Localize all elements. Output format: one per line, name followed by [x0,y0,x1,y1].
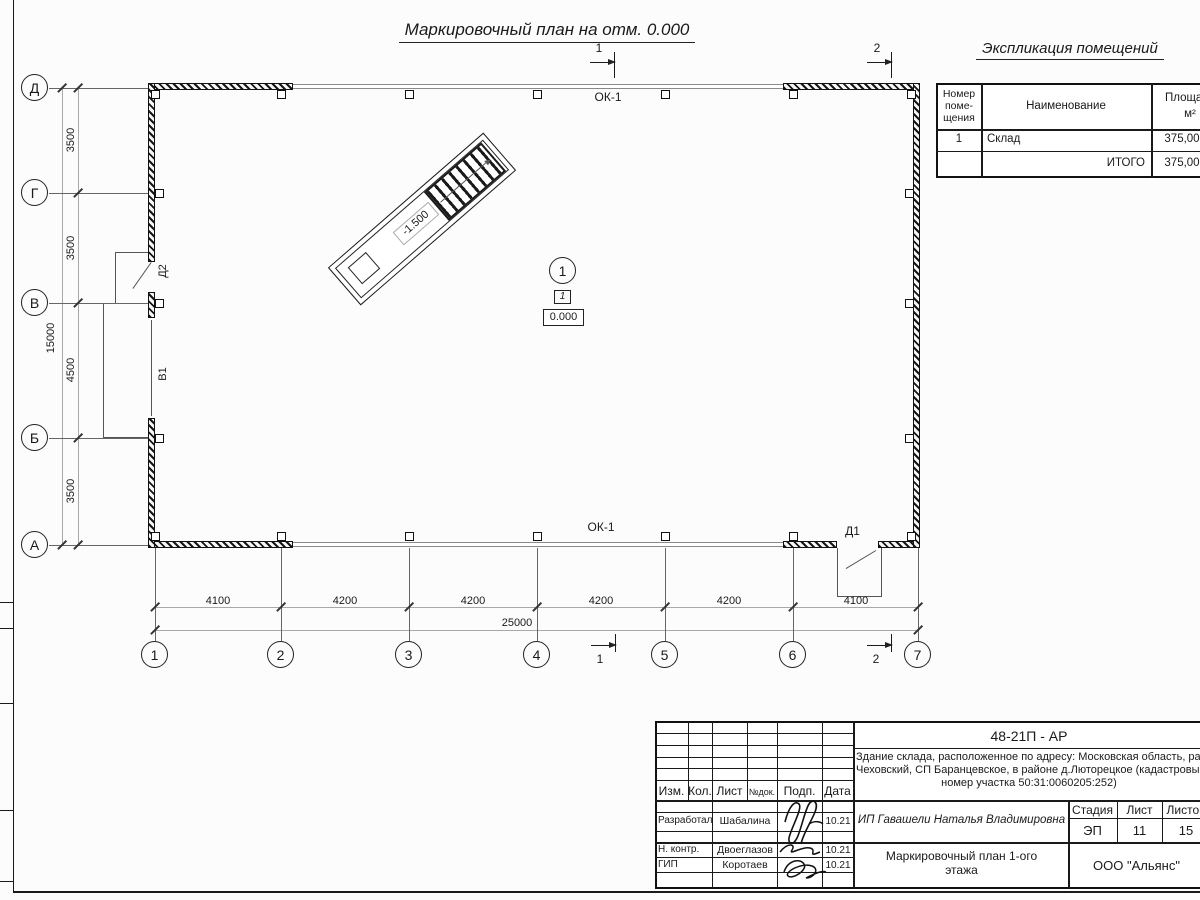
floor-elevation-box: 0.000 [543,309,584,326]
door-d2-porch-side [115,252,116,303]
frame-fold-mark [0,881,13,882]
frame-left [13,0,14,892]
section2-tick-top [891,52,892,78]
explication-row-num: 1 [937,133,981,145]
door-d1-leaf [846,550,877,569]
dim-label-total: 25000 [487,617,547,629]
wall-top-right [783,83,920,90]
tb-company: ООО "Альянс" [1068,858,1200,873]
column-square [405,532,414,541]
tb-header-kol: Кол. [686,784,714,798]
column-square [151,532,160,541]
wall-top-left [148,83,293,90]
column-square [661,532,670,541]
titleblock-line [655,800,1200,802]
dim-label: 4100 [188,595,248,607]
axis-label: 7 [914,647,922,663]
drawing-title-text: Маркировочный план на отм. 0.000 [399,20,696,43]
room-tag-box: 1 [554,290,571,304]
wall-right [913,83,920,548]
axis-line [49,438,148,439]
axis-label: А [30,537,39,553]
section1-arrow-top [590,62,609,63]
tb-name: Шабалина [714,815,776,827]
axis-line [49,193,148,194]
axis-circle-bottom: 6 [779,641,806,668]
axis-label: 1 [151,647,159,663]
axis-label: 4 [533,647,541,663]
axis-line [281,548,282,641]
section1-number-top: 1 [589,41,609,55]
explication-col-area-unit: м² [1151,108,1200,120]
gate-v1-line [151,320,152,416]
column-square [661,90,670,99]
explication-row-name: Склад [987,133,1147,145]
dim-label: 4200 [699,595,759,607]
axis-circle-left: В [21,289,48,316]
frame-fold-mark [0,628,13,629]
axis-line [665,548,666,641]
tb-role: Н. контр. [658,844,712,855]
explication-rowline [936,129,1200,131]
door-d1-porch-right [881,548,882,597]
dim-label: 4200 [571,595,631,607]
explication-col-number: Номерпоме-щения [937,88,981,124]
tb-role: ГИП [658,859,712,870]
ramp-group: -1.500 [328,133,516,306]
titleblock-line [712,721,713,889]
axis-line [49,88,148,89]
drawing-title: Маркировочный план на отм. 0.000 [347,20,747,43]
axis-circle-bottom: 1 [141,641,168,668]
column-square [907,532,916,541]
tb-sheet: 11 [1117,823,1162,838]
axis-circle-left: Б [21,424,48,451]
column-square [155,189,164,198]
explication-col-name: Наименование [981,100,1151,112]
door-d2-porch-top [115,252,148,253]
axis-label: 6 [789,647,797,663]
column-square [905,189,914,198]
titleblock-line [655,768,853,769]
axis-circle-bottom: 5 [651,641,678,668]
door-d2-leaf [132,262,151,289]
explication-title: Экспликация помещений [950,40,1190,60]
wall-bottom-left [148,541,293,548]
axis-line [793,548,794,641]
dim-label: 3500 [65,120,77,160]
wall-left-upper [148,83,155,262]
column-square [155,299,164,308]
titleblock-line [655,780,853,781]
column-square [277,532,286,541]
explication-total-label: ИТОГО [981,157,1145,169]
window-band-top [293,84,783,89]
dim-label: 4200 [443,595,503,607]
window-ok1-bottom-label: ОК-1 [576,520,626,534]
titleblock-line [655,757,853,758]
tb-address-line2: Чеховский, СП Баранцевское, в районе д.Л… [856,764,1200,776]
room-number: 1 [559,263,567,279]
section2-tick-bottom [891,634,892,652]
titleblock-line [855,748,1200,749]
room-number-circle: 1 [549,257,576,284]
column-square [905,434,914,443]
section2-number-top: 2 [867,41,887,55]
axis-label: 5 [661,647,669,663]
titleblock-line [655,745,853,746]
tb-header-izm: Изм. [655,784,688,798]
frame-fold-mark [0,810,13,811]
column-square [789,532,798,541]
section2-number-bottom: 2 [866,652,886,666]
explication-total-area: 375,00 [1151,157,1200,169]
titleblock-line [1068,818,1200,819]
axis-label: Г [31,185,39,201]
axis-circle-left: Г [21,179,48,206]
column-square [789,90,798,99]
section1-tick-top [614,52,615,78]
section1-number-bottom: 1 [590,652,610,666]
tb-date: 10.21 [823,816,853,827]
axis-line [49,303,148,304]
column-square [151,90,160,99]
tb-stage: ЭП [1068,823,1117,838]
tb-role: Разработал [658,815,712,826]
axis-circle-bottom: 4 [523,641,550,668]
tb-stage-label: Стадия [1068,803,1117,817]
column-square [277,90,286,99]
drawing-sheet: Маркировочный план на отм. 0.000 Эксплик… [0,0,1200,900]
frame-fold-mark [0,703,13,704]
platform-edge-left [103,303,104,438]
explication-title-text: Экспликация помещений [976,40,1164,60]
dim-label: 3500 [65,471,77,511]
column-square [405,90,414,99]
axis-circle-bottom: 7 [904,641,931,668]
wall-left-mid [148,292,155,318]
axis-circle-bottom: 2 [267,641,294,668]
window-band-bottom [293,542,783,547]
door-d2-label: Д2 [157,251,169,291]
section1-tick-bottom [615,634,616,652]
explication-row-area: 375,00 [1151,133,1200,145]
frame-fold-mark [0,602,13,603]
tb-address-line3: номер участка 50:31:0060205:252) [856,777,1200,789]
dim-line-left-segments [78,88,79,545]
titleblock-line [655,733,853,734]
tb-header-data: Дата [822,784,853,798]
axis-circle-left: Д [21,74,48,101]
tb-doc-code: 48-21П - АР [855,728,1200,744]
tb-name: Двоеглазов [714,844,776,856]
tb-drawing-name2: этажа [855,863,1068,877]
tb-sheet-label: Лист [1117,803,1162,817]
axis-circle-left: А [21,531,48,558]
axis-label: Д [30,80,39,96]
tb-sheets-label: Листов [1162,803,1200,817]
wall-left-lower [148,418,155,548]
tb-address-line1: Здание склада, расположенное по адресу: … [856,751,1200,763]
axis-line [409,548,410,641]
door-d1-porch-left [837,548,838,597]
tb-drawing-name1: Маркировочный план 1-ого [855,849,1068,863]
dim-label: 4500 [65,350,77,390]
door-d1-label: Д1 [830,524,875,538]
axis-line [49,545,148,546]
section1-arrow-bottom [591,645,610,646]
section2-arrow-top [867,62,886,63]
tb-header-list: Лист [712,784,747,798]
explication-col-area: Площадь [1151,92,1200,104]
explication-rowline [936,151,1200,152]
axis-label: 2 [277,647,285,663]
axis-label: 3 [405,647,413,663]
dim-label: 4100 [826,595,886,607]
window-ok1-top-label: ОК-1 [583,90,633,104]
dim-label: 3500 [65,228,77,268]
frame-bottom [13,891,1200,893]
column-square [155,434,164,443]
section2-arrow-bottom [867,645,886,646]
tb-client: ИП Гавашели Наталья Владимировна [855,814,1068,826]
signature [776,838,830,884]
axis-label: Б [30,430,39,446]
tb-name: Коротаев [714,859,776,871]
tb-header-ndoc: №док. [747,787,777,797]
wall-bottom-right1 [783,541,837,548]
column-square [533,90,542,99]
column-square [905,299,914,308]
gate-v1-label: В1 [157,354,169,394]
dim-label-total: 15000 [45,318,57,358]
column-square [907,90,916,99]
axis-circle-bottom: 3 [395,641,422,668]
column-square [533,532,542,541]
dim-label: 4200 [315,595,375,607]
tb-sheets: 15 [1162,823,1200,838]
dim-line-left-total [62,88,63,545]
axis-label: В [30,295,39,311]
axis-line [537,548,538,641]
